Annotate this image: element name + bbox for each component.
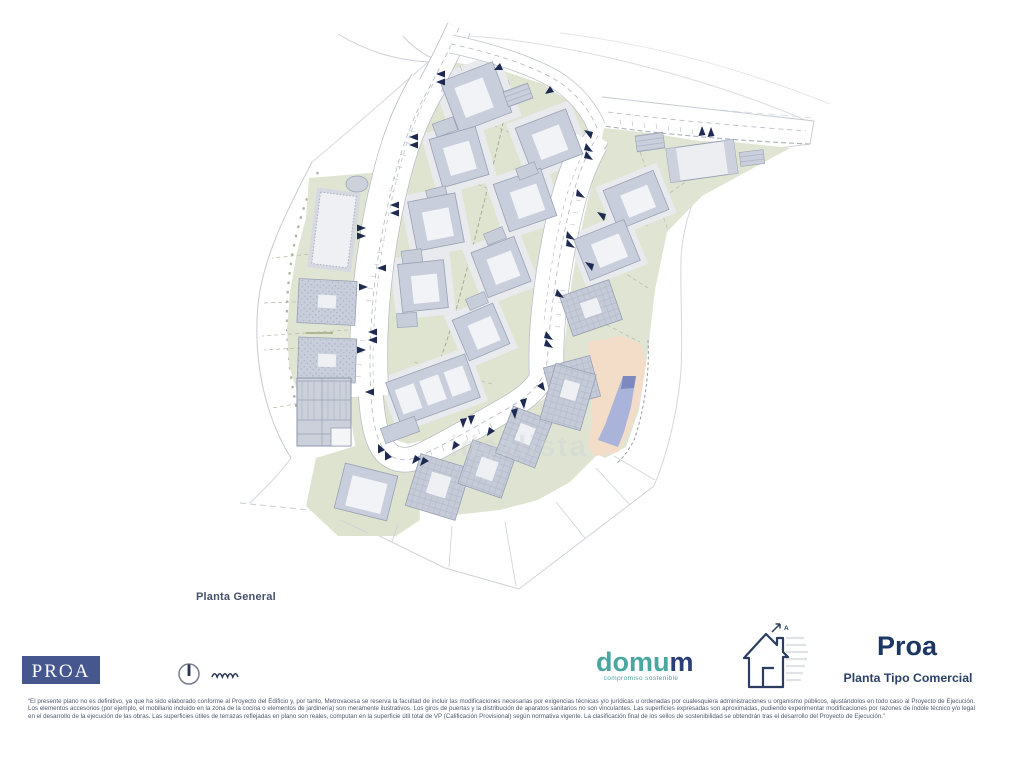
svg-text:Planta General: Planta General <box>196 591 276 603</box>
svg-text:idealista: idealista <box>450 430 588 463</box>
svg-text:Proa: Proa <box>877 631 938 661</box>
svg-text:PROA: PROA <box>32 661 91 682</box>
svg-text:compromiso sostenible: compromiso sostenible <box>604 675 679 682</box>
svg-text:domum: domum <box>596 647 694 677</box>
svg-text:A: A <box>784 625 789 632</box>
svg-text:Planta Tipo Comercial: Planta Tipo Comercial <box>844 671 973 685</box>
